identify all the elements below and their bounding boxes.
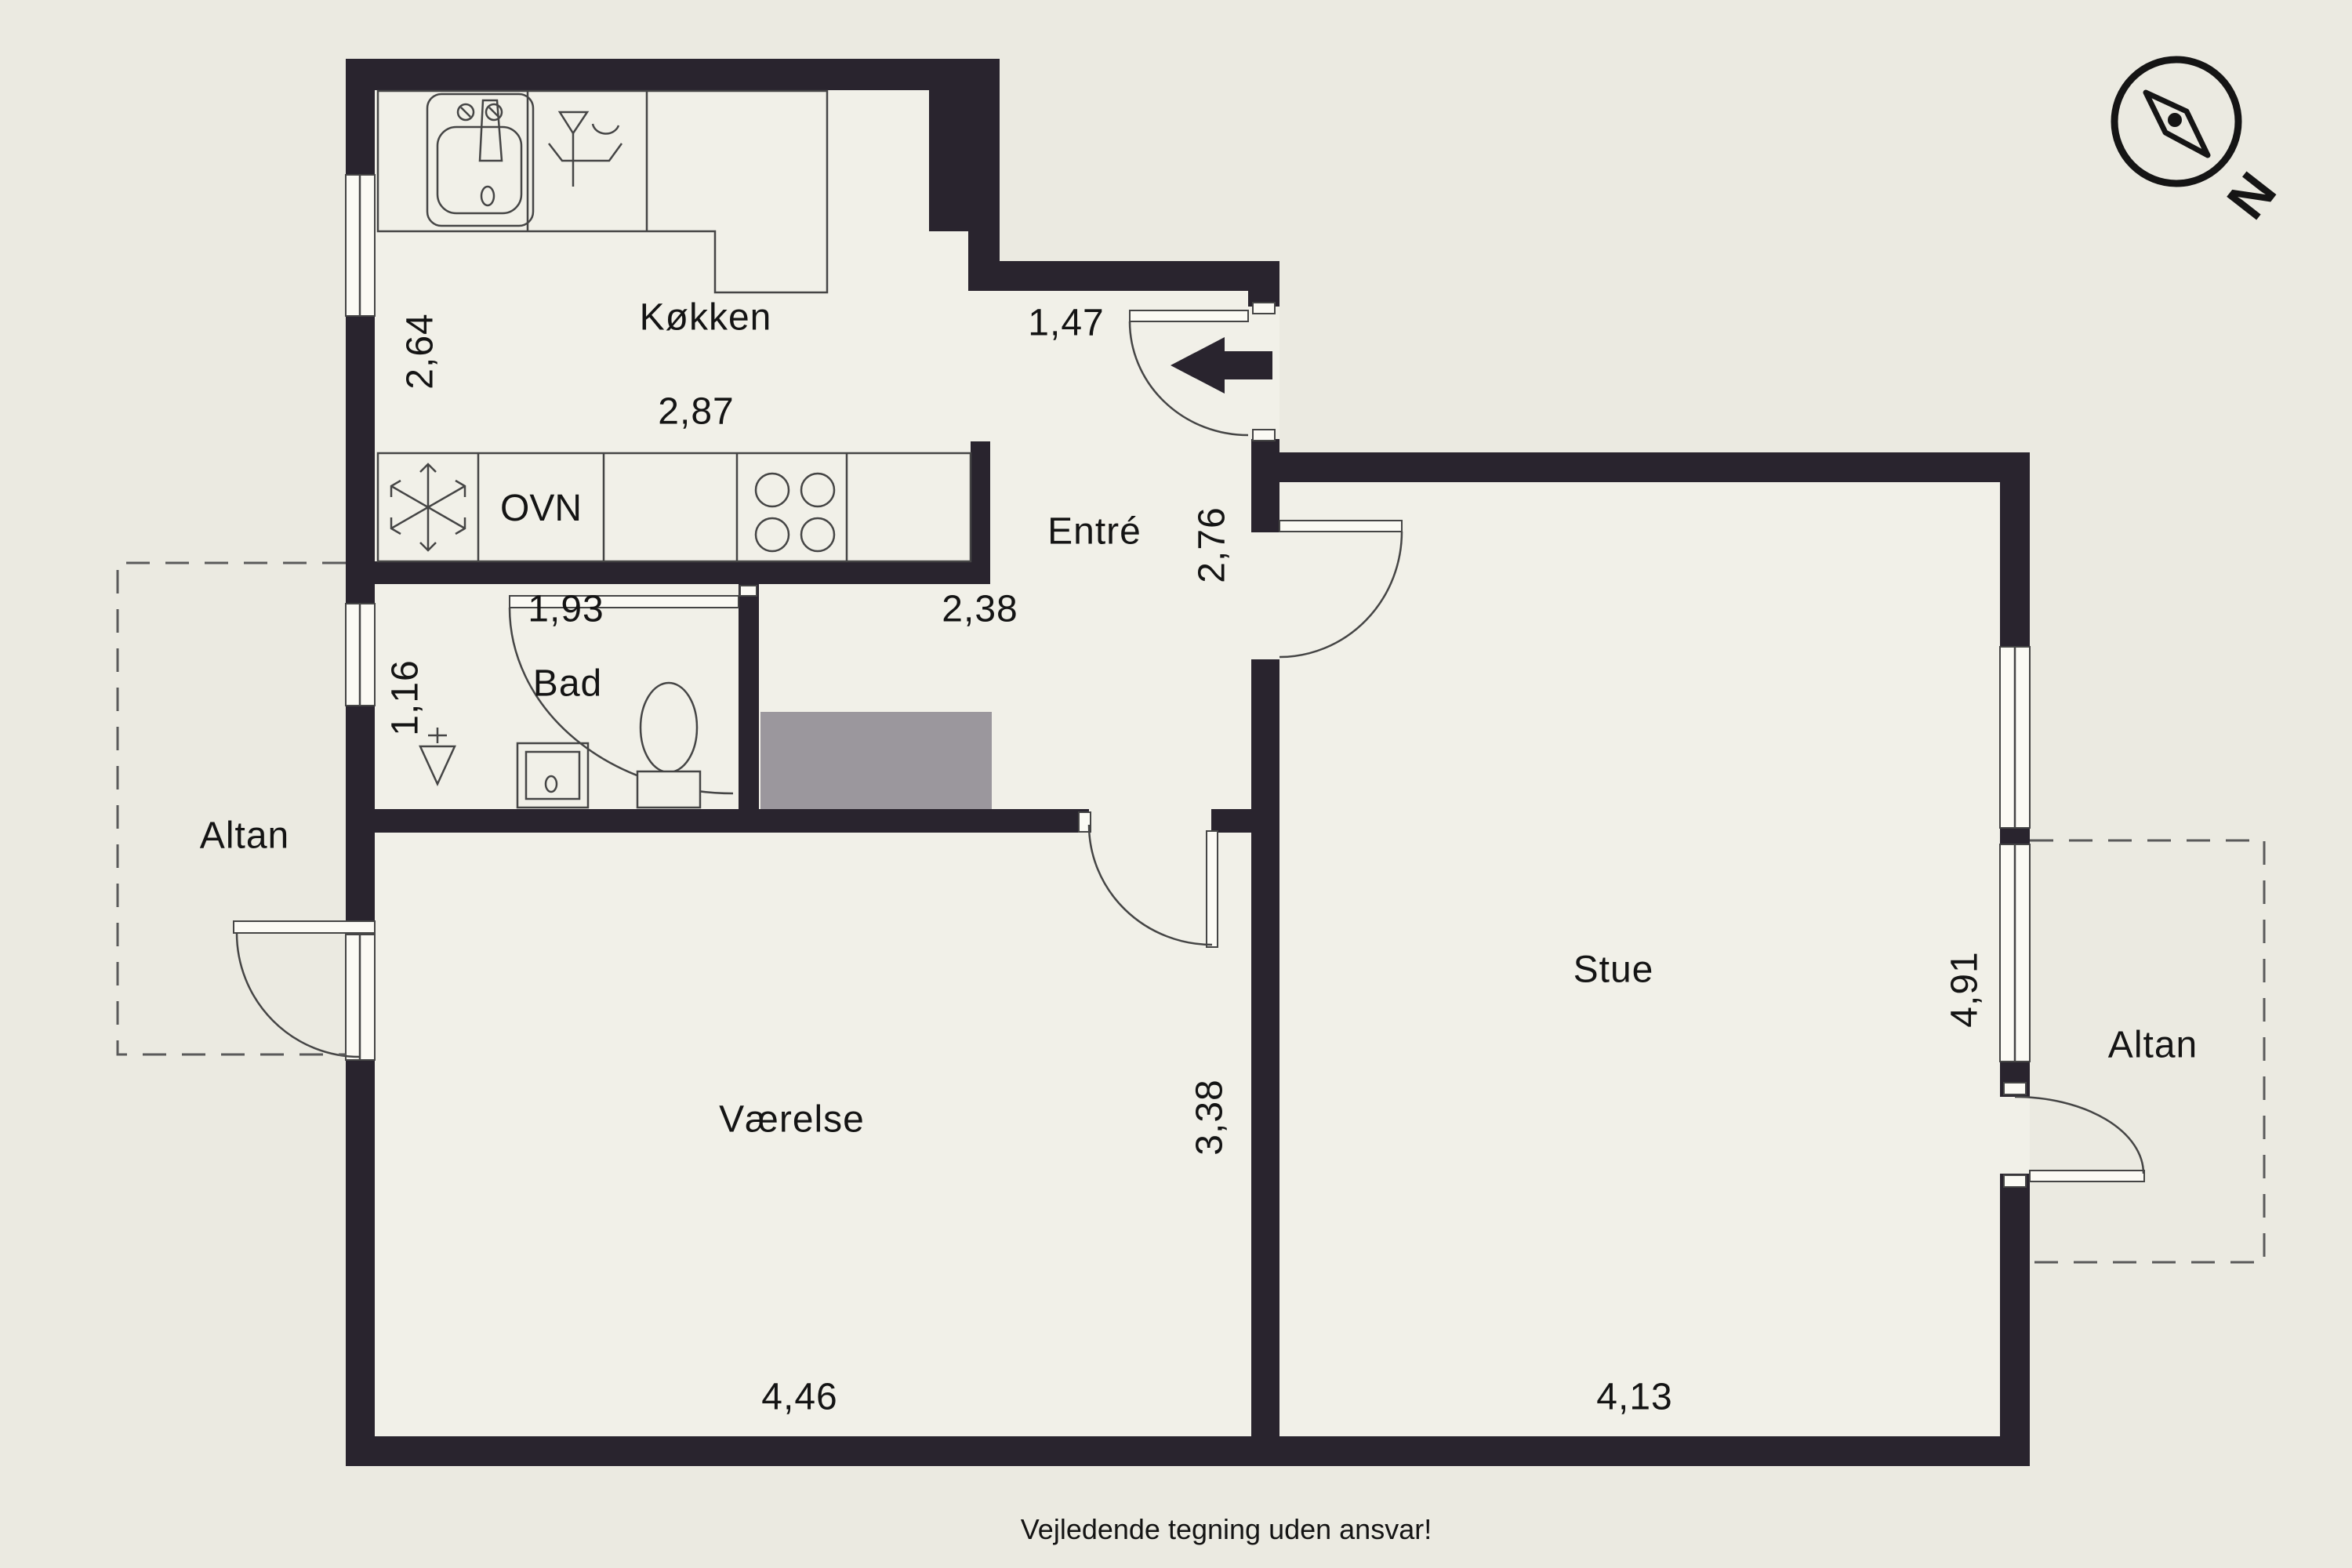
door-stop-entry-top [1253, 303, 1275, 314]
room-label-entry: Entré [1047, 510, 1142, 554]
door-stop-bath [740, 586, 757, 596]
room-label-bedroom: Værelse [719, 1098, 865, 1142]
window-bath-west [346, 604, 375, 706]
dish-rack-icon [549, 112, 622, 187]
room-label-balcony-right: Altan [2108, 1024, 2198, 1067]
dim-bedroom-height: 3,38 [1189, 1079, 1232, 1155]
balcony-door-right [2015, 1097, 2144, 1181]
door-stop-entry-bottom [1253, 430, 1275, 441]
living-room-door [1279, 521, 1402, 657]
room-label-living: Stue [1573, 949, 1654, 992]
toilet-icon [637, 683, 700, 808]
dim-bedroom-width: 4,46 [761, 1376, 837, 1419]
dim-entry-width: 1,47 [1028, 302, 1104, 345]
dim-entry-height: 2,76 [1191, 506, 1234, 583]
compass-north-label: N [2216, 162, 2288, 230]
window-kitchen-west [346, 175, 375, 316]
dim-living-width: 4,13 [1596, 1376, 1672, 1419]
dim-kitchen-width: 2,87 [658, 390, 734, 434]
stove-icon [756, 474, 834, 551]
kitchen-sink-icon [427, 94, 533, 226]
bath-sink-icon [517, 743, 588, 808]
bedroom-door [1089, 825, 1218, 947]
floor-plan: N OVN Køkken Entré Bad Værelse Stue Alta… [0, 0, 2352, 1568]
shower-drain-icon [420, 728, 455, 784]
fridge-snowflake-icon [391, 464, 465, 550]
door-stop-balcony-right-top [2004, 1083, 2026, 1094]
kitchen-counter-bottom [378, 453, 971, 561]
window-living-east-lower [2000, 844, 2030, 1062]
dim-hall-width: 2,38 [942, 588, 1018, 631]
room-label-balcony-left: Altan [200, 815, 289, 858]
balcony-door-glass-west [346, 935, 375, 1060]
dim-bathroom-width: 1,93 [528, 588, 604, 631]
oven-label: OVN [500, 488, 582, 529]
door-stop-balcony-right-bottom [2004, 1175, 2026, 1187]
dim-living-height: 4,91 [1944, 951, 1987, 1027]
disclaimer-text: Vejledende tegning uden ansvar! [1021, 1513, 1432, 1546]
compass-icon: N [2114, 60, 2288, 230]
kitchen-counter-top [378, 91, 827, 292]
dim-kitchen-height: 2,64 [399, 313, 442, 389]
plan-linework: N OVN [0, 0, 2352, 1568]
entrance-arrow-icon [1171, 337, 1272, 394]
dim-bathroom-height: 1,16 [384, 659, 427, 735]
room-label-kitchen: Køkken [640, 296, 772, 339]
room-label-bathroom: Bad [533, 662, 602, 706]
window-living-east-upper [2000, 647, 2030, 828]
balcony-left-outline [118, 563, 346, 1054]
